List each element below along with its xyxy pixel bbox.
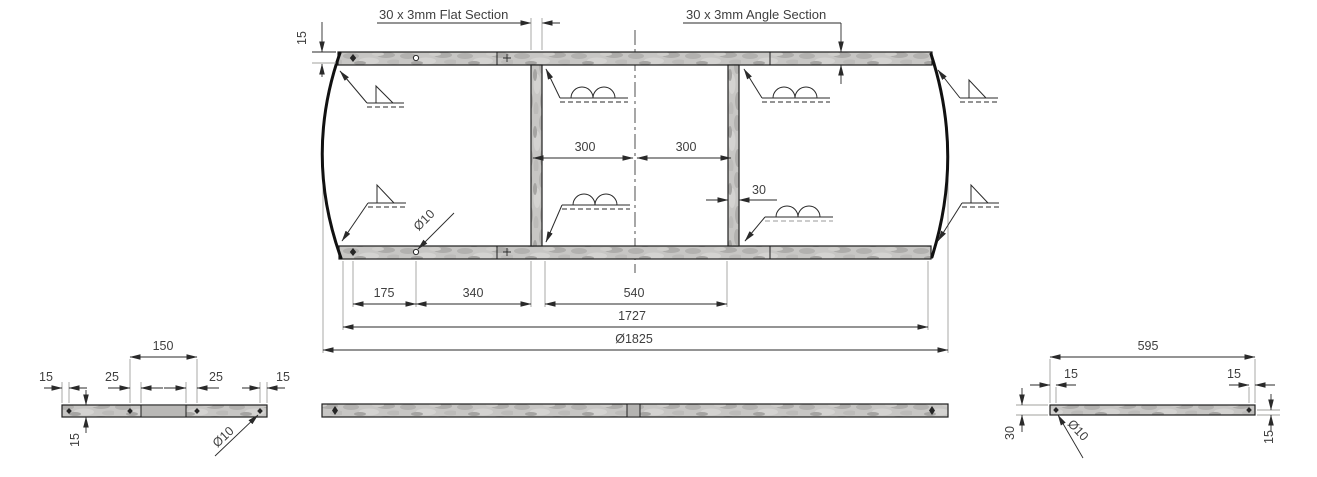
- weld-symbol-fillet-top-left: [340, 71, 404, 107]
- hole-dia-label: Ø10: [411, 207, 438, 234]
- dim-bay-left-label: 300: [575, 140, 596, 154]
- dim-bays: 300 300: [533, 140, 731, 158]
- hole-dia-label: Ø10: [210, 424, 237, 450]
- dim-frame-length-label: 1727: [618, 309, 646, 323]
- long-bar-view: [322, 404, 948, 417]
- dim-overall-diameter: Ø1825: [323, 332, 948, 350]
- dim-edge-right-label: 25: [209, 370, 223, 384]
- dim-width-label: 30: [1003, 426, 1017, 440]
- dim-width: 30: [1003, 388, 1048, 440]
- weld-symbol-seam-right-top: [744, 69, 830, 102]
- main-frame-view: 30 x 3mm Flat Section 30 x 3mm Angle Sec…: [295, 7, 999, 353]
- hole-dia-callout: Ø10: [411, 207, 454, 249]
- dim-edge-left-label: 25: [105, 370, 119, 384]
- weld-symbol-seam-left-top: [546, 69, 628, 102]
- dim-bay-right-label: 300: [676, 140, 697, 154]
- dim-hole-to-bar-label: 340: [463, 286, 484, 300]
- right-arc-edge: [931, 54, 948, 257]
- cad-drawing: 30 x 3mm Flat Section 30 x 3mm Angle Sec…: [0, 0, 1317, 477]
- dim-hole-offset: 15: [1257, 394, 1280, 444]
- dim-length: 595: [1050, 339, 1255, 403]
- dim-hole-offset-label: 15: [1262, 430, 1276, 444]
- cross-bar-left: [531, 65, 542, 246]
- dim-bar-width-label: 30: [752, 183, 766, 197]
- dim-end-right-label: 15: [276, 370, 290, 384]
- dim-bar-spacing-label: 540: [624, 286, 645, 300]
- dim-hole-offset-label: 15: [68, 433, 82, 447]
- flat-section-callout: 30 x 3mm Flat Section: [377, 7, 560, 50]
- drawing-sheet: 30 x 3mm Flat Section 30 x 3mm Angle Sec…: [0, 0, 1317, 477]
- dim-end-left-label: 15: [39, 370, 53, 384]
- dim-end-left-label: 15: [1064, 367, 1078, 381]
- dim-bar-width: 30: [706, 183, 777, 200]
- angle-section-label: 30 x 3mm Angle Section: [686, 7, 826, 22]
- dim-hole-span-label: 150: [153, 339, 174, 353]
- end-bar-view: 150 15 25 25 15 15: [39, 339, 290, 456]
- hole-mark-circle: [413, 55, 418, 60]
- dim-end-offsets: 15 15: [1030, 367, 1275, 403]
- dim-end-right-label: 15: [1227, 367, 1241, 381]
- end-bar-center-piece: [141, 405, 186, 417]
- dim-hole-pitch-label: 175: [374, 286, 395, 300]
- long-bar-center-piece: [627, 404, 640, 417]
- flat-section-label: 30 x 3mm Flat Section: [379, 7, 508, 22]
- dim-edge-offset-label: 15: [295, 31, 309, 45]
- dim-edge-offset: 15: [295, 22, 336, 77]
- angle-section-callout: 30 x 3mm Angle Section: [683, 7, 841, 84]
- weld-symbol-seam-left-bottom: [546, 194, 630, 242]
- bottom-rail: [339, 246, 931, 259]
- hole-mark-circle: [413, 249, 418, 254]
- hole-dia-label: Ø10: [1065, 417, 1091, 444]
- weld-symbol-fillet-bottom-left: [342, 185, 406, 241]
- dim-hole-span: 150: [130, 339, 197, 403]
- side-bar-view: 595 15 15 30 15: [1003, 339, 1280, 458]
- left-arc-edge: [322, 53, 341, 258]
- dim-row-holes: 175 340 540: [353, 261, 727, 307]
- hole-dia-callout: Ø10: [210, 415, 258, 456]
- side-bar: [1050, 405, 1255, 415]
- weld-symbol-fillet-top-right: [938, 70, 998, 102]
- dim-length-label: 595: [1138, 339, 1159, 353]
- dim-row-end-bar: 15 25 25 15: [39, 370, 290, 403]
- weld-symbol-seam-right-bottom: [745, 206, 833, 241]
- cross-bar-right: [728, 65, 739, 246]
- dim-hole-offset: 15: [68, 390, 86, 447]
- top-rail: [338, 52, 932, 65]
- dim-overall-diameter-label: Ø1825: [615, 332, 653, 346]
- hole-dia-callout: Ø10: [1058, 415, 1091, 458]
